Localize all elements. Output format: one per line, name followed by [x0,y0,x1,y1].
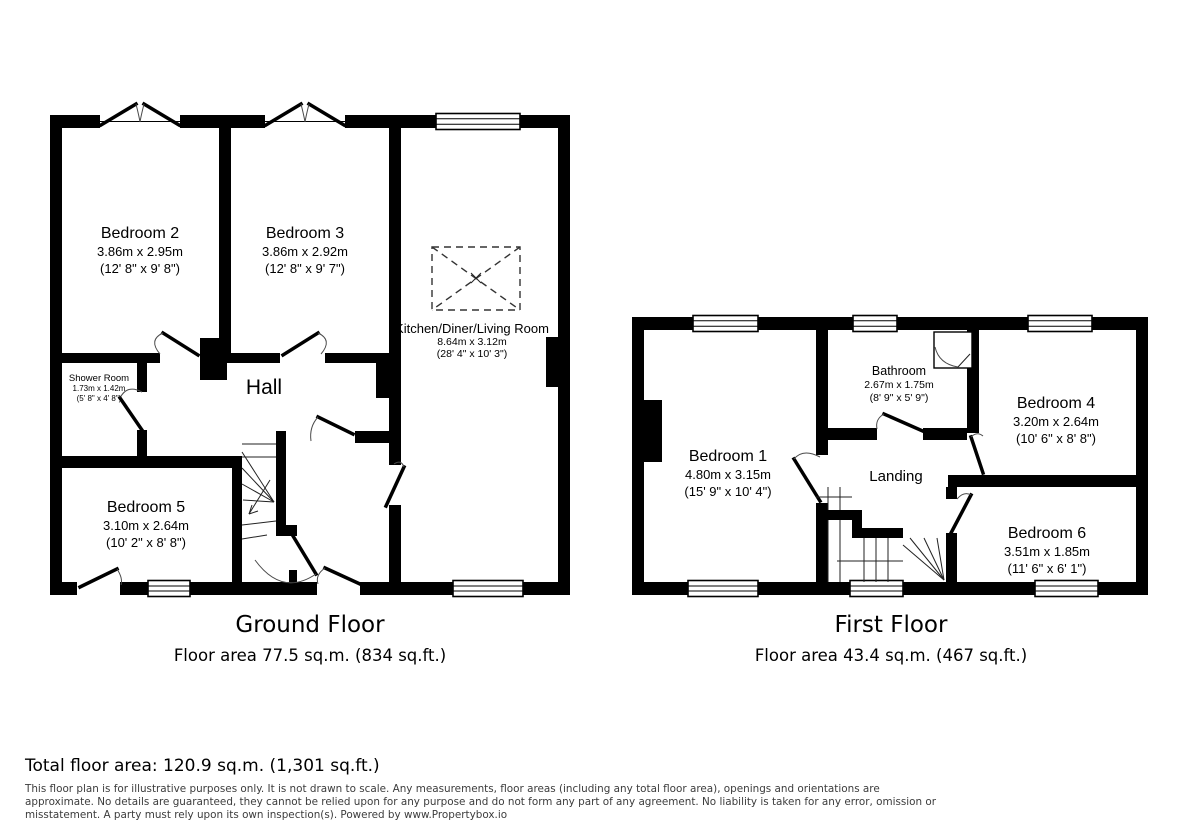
total-floor-area: Total floor area: 120.9 sq.m. (1,301 sq.… [25,756,380,776]
room-dim-imperial: (11' 6" x 6' 1") [1004,560,1090,577]
door-swing-icon [283,333,326,355]
room-dim-metric: 4.80m x 3.15m [684,466,771,483]
door-swing-icon [311,417,353,441]
room-name: Bedroom 2 [97,224,183,243]
disclaimer-line-2: approximate. No details are guaranteed, … [25,796,936,809]
window-icon [853,316,897,332]
room-label-bedroom6: Bedroom 6 3.51m x 1.85m (11' 6" x 6' 1") [1004,524,1090,577]
room-dim-metric: 1.73m x 1.42m [69,384,129,394]
disclaimer-line-3: misstatement. A party must rely upon its… [25,809,936,822]
door-swing-icon [971,434,983,473]
room-dim-imperial: (15' 9" x 10' 4") [684,483,771,500]
room-name: Kitchen/Diner/Living Room [395,322,549,336]
room-dim-metric: 3.10m x 2.64m [103,517,189,534]
room-dim-metric: 3.20m x 2.64m [1013,413,1099,430]
room-label-landing: Landing [869,468,922,485]
room-name: Bedroom 3 [262,224,348,243]
window-icon [688,581,758,597]
floorplan-page: Bedroom 2 3.86m x 2.95m (12' 8" x 9' 8")… [0,0,1200,840]
room-name: Shower Room [69,373,129,384]
door-swing-icon [317,568,360,584]
room-label-bathroom: Bathroom 2.67m x 1.75m (8' 9" x 5' 9") [864,364,933,404]
casement-window-icon [265,104,345,125]
room-label-bedroom1: Bedroom 1 4.80m x 3.15m (15' 9" x 10' 4"… [684,447,771,500]
room-name: Bedroom 5 [103,498,189,517]
room-dim-imperial: (10' 6" x 8' 8") [1013,430,1099,447]
room-dim-imperial: (28' 4" x 10' 3") [395,348,549,360]
first-floor-title: First Floor [835,612,948,638]
window-icon [453,581,523,597]
window-icon [1028,316,1092,332]
room-dim-metric: 3.86m x 2.95m [97,243,183,260]
room-label-bedroom3: Bedroom 3 3.86m x 2.92m (12' 8" x 9' 7") [262,224,348,277]
disclaimer-text: This floor plan is for illustrative purp… [25,783,936,823]
window-icon [436,114,520,130]
room-label-hall: Hall [246,376,282,400]
window-icon [1035,581,1098,597]
staircase-icon [242,444,276,539]
ground-floor-area: Floor area 77.5 sq.m. (834 sq.ft.) [174,646,446,665]
room-label-shower-room: Shower Room 1.73m x 1.42m (5' 8" x 4' 8"… [69,373,129,403]
room-dim-metric: 8.64m x 3.12m [395,336,549,348]
room-name: Bedroom 4 [1013,394,1099,413]
door-swing-icon [155,333,198,355]
casement-window-icon [100,104,180,125]
shower-cubicle-icon [934,332,972,368]
room-label-bedroom2: Bedroom 2 3.86m x 2.95m (12' 8" x 9' 8") [97,224,183,277]
window-icon [693,316,758,332]
disclaimer-line-1: This floor plan is for illustrative purp… [25,783,936,796]
window-icon [148,581,190,597]
door-swing-icon [80,569,122,587]
room-dim-imperial: (8' 9" x 5' 9") [864,392,933,405]
room-name: Bedroom 1 [684,447,771,466]
room-dim-metric: 3.51m x 1.85m [1004,543,1090,560]
room-label-bedroom5: Bedroom 5 3.10m x 2.64m (10' 2" x 8' 8") [103,498,189,551]
room-dim-metric: 2.67m x 1.75m [864,379,933,392]
window-icon [850,581,903,597]
room-dim-imperial: (12' 8" x 9' 8") [97,260,183,277]
room-name: Bedroom 6 [1004,524,1090,543]
room-dim-metric: 3.86m x 2.92m [262,243,348,260]
room-dim-imperial: (10' 2" x 8' 8") [103,534,189,551]
door-swing-icon [794,453,820,501]
room-dim-imperial: (12' 8" x 9' 7") [262,260,348,277]
room-dim-imperial: (5' 8" x 4' 8") [69,394,129,404]
room-name: Bathroom [864,364,933,379]
first-floor-area: Floor area 43.4 sq.m. (467 sq.ft.) [755,646,1027,665]
skylight-icon [432,247,520,310]
ground-floor-title: Ground Floor [235,612,384,638]
door-swing-icon [255,536,316,583]
door-swing-icon [386,462,404,506]
door-swing-icon [951,494,971,533]
room-label-bedroom4: Bedroom 4 3.20m x 2.64m (10' 6" x 8' 8") [1013,394,1099,447]
room-label-kitchen: Kitchen/Diner/Living Room 8.64m x 3.12m … [395,322,549,360]
door-swing-icon [877,414,925,432]
